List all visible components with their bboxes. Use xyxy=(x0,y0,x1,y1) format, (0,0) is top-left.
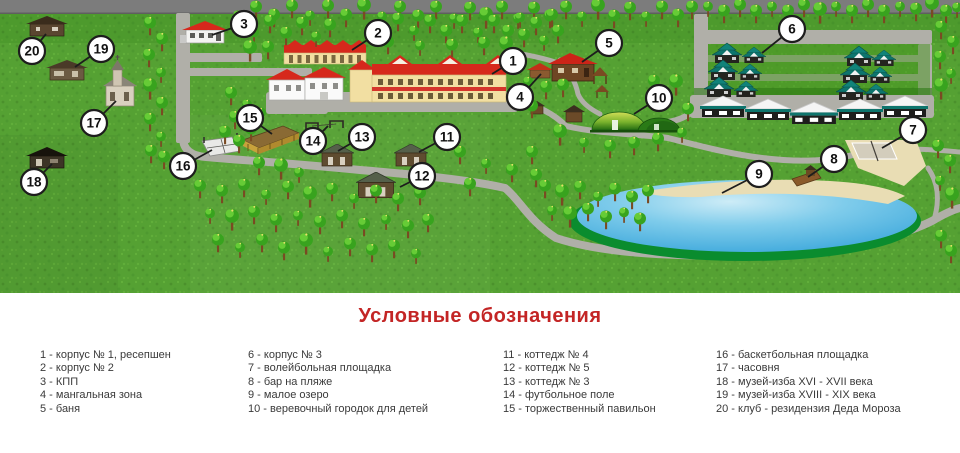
legend-item: 11 - коттедж № 4 xyxy=(503,349,656,362)
legend-item: 10 - веревочный городок для детей xyxy=(248,403,428,416)
legend-item: 6 - корпус № 3 xyxy=(248,349,428,362)
svg-text:16: 16 xyxy=(175,159,191,174)
svg-text:12: 12 xyxy=(414,169,429,184)
legend-item: 12 - коттедж № 5 xyxy=(503,362,656,375)
legend-item: 4 - мангальная зона xyxy=(40,389,171,402)
svg-text:7: 7 xyxy=(909,123,917,138)
legend-item: 1 - корпус № 1, ресепшен xyxy=(40,349,171,362)
legend-item: 5 - баня xyxy=(40,403,171,416)
legend-column-2: 6 - корпус № 3 7 - волейбольная площадка… xyxy=(248,349,428,416)
legend-item: 17 - часовня xyxy=(716,362,901,375)
legend-column-4: 16 - баскетбольная площадка 17 - часовня… xyxy=(716,349,901,416)
legend-title: Условные обозначения xyxy=(0,305,960,328)
svg-text:15: 15 xyxy=(242,111,258,126)
svg-text:14: 14 xyxy=(305,134,321,149)
legend-column-1: 1 - корпус № 1, ресепшен 2 - корпус № 2 … xyxy=(40,349,171,416)
legend-item: 20 - клуб - резидензия Деда Мороза xyxy=(716,403,901,416)
svg-text:5: 5 xyxy=(605,36,613,51)
svg-text:11: 11 xyxy=(440,130,455,145)
legend-item: 14 - футбольное поле xyxy=(503,389,656,402)
svg-text:2: 2 xyxy=(374,26,382,41)
legend-item: 2 - корпус № 2 xyxy=(40,362,171,375)
legend-item: 16 - баскетбольная площадка xyxy=(716,349,901,362)
resort-map: 1 2 3 4 5 6 7 8 9 10 11 12 13 14 15 16 1… xyxy=(0,0,960,293)
svg-text:19: 19 xyxy=(93,42,108,57)
svg-text:10: 10 xyxy=(651,91,666,106)
legend-item: 7 - волейбольная площадка xyxy=(248,362,428,375)
svg-text:9: 9 xyxy=(755,167,763,182)
map-marker-14[interactable]: 14 xyxy=(300,126,328,154)
svg-text:4: 4 xyxy=(516,90,524,105)
svg-text:17: 17 xyxy=(86,116,101,131)
legend-item: 19 - музей-изба XVIII - XIX века xyxy=(716,389,901,402)
svg-text:3: 3 xyxy=(240,17,248,32)
legend-item: 8 - бар на пляже xyxy=(248,376,428,389)
legend-item: 9 - малое озеро xyxy=(248,389,428,402)
legend-item: 3 - КПП xyxy=(40,376,171,389)
legend-item: 15 - торжественный павильон xyxy=(503,403,656,416)
legend-item: 13 - коттедж № 3 xyxy=(503,376,656,389)
legend-column-3: 11 - коттедж № 4 12 - коттедж № 5 13 - к… xyxy=(503,349,656,416)
svg-text:6: 6 xyxy=(788,22,796,37)
svg-text:8: 8 xyxy=(830,152,838,167)
svg-text:18: 18 xyxy=(26,175,42,190)
legend-item: 18 - музей-изба XVI - XVII века xyxy=(716,376,901,389)
svg-text:1: 1 xyxy=(509,54,517,69)
svg-text:20: 20 xyxy=(24,44,39,59)
svg-text:13: 13 xyxy=(354,130,370,145)
